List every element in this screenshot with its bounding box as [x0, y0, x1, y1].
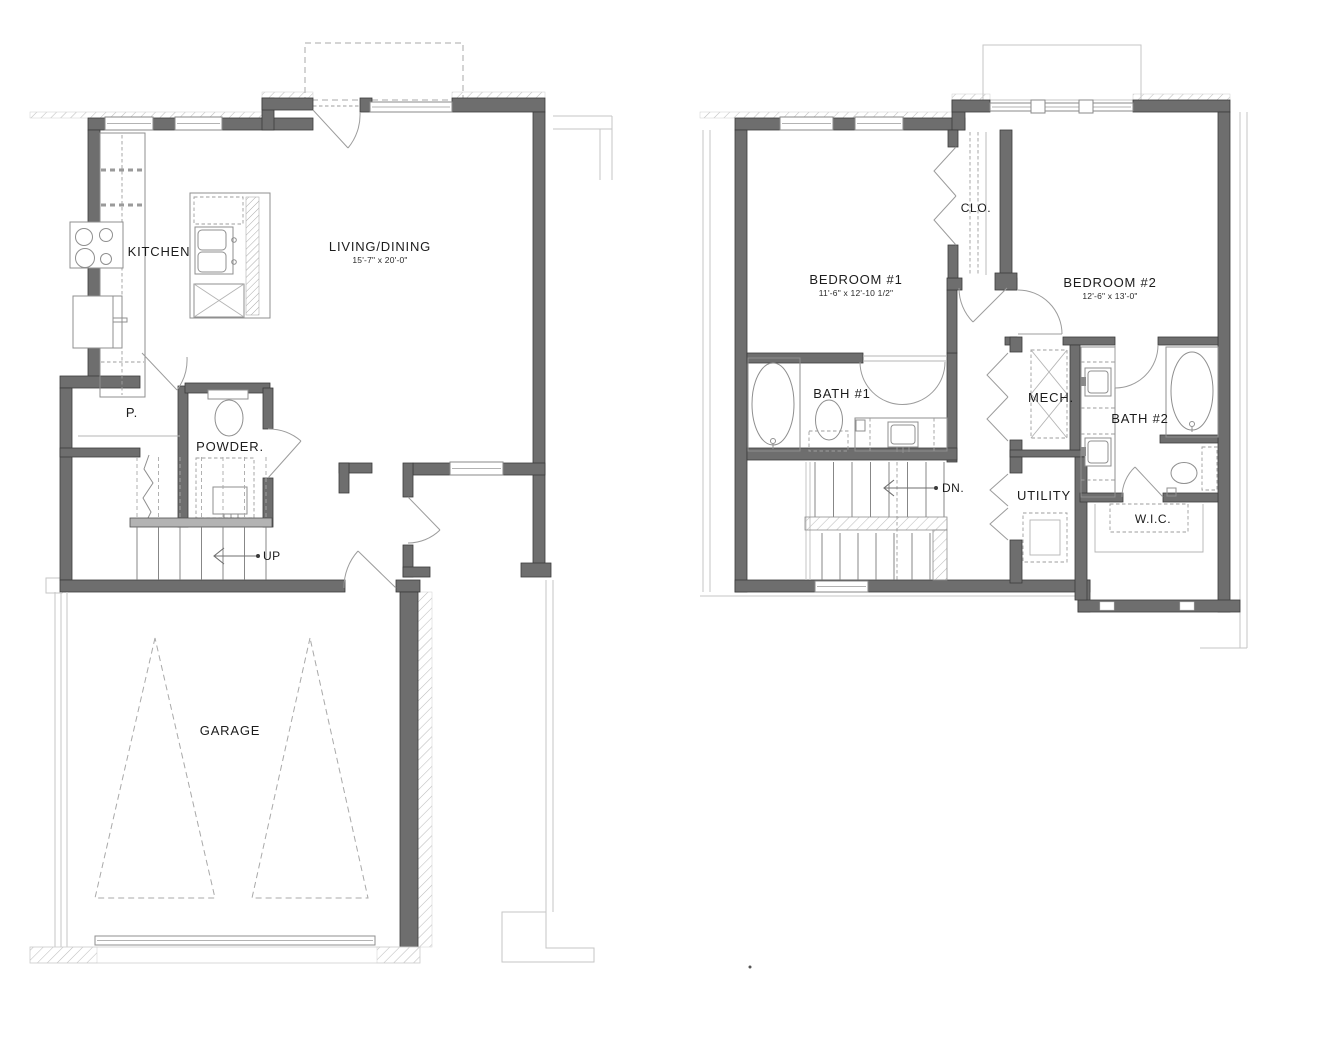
entry-porch-outline [305, 43, 463, 100]
up-label: UP [263, 549, 281, 563]
bedroom2-dims: 12'-6" x 13'-0" [1082, 291, 1137, 301]
garage-left-wall-lines [55, 592, 67, 947]
floor-plan-sheet: KITCHEN LIVING/DINING 15'-7" x 20'-0" P.… [0, 0, 1336, 1056]
living-dining-label: LIVING/DINING [329, 239, 431, 254]
first-floor-windows [105, 102, 503, 475]
bedroom2-label: BEDROOM #2 [1063, 275, 1156, 290]
garage-door [95, 936, 375, 945]
vestibule-door [408, 497, 440, 543]
island-sink [195, 227, 236, 274]
entry-door [313, 110, 360, 148]
utility-bifold-1 [990, 474, 1008, 506]
pantry-door [142, 353, 187, 390]
bath1-label: BATH #1 [813, 386, 870, 401]
vestibule-window [450, 462, 503, 475]
cooktop [70, 222, 123, 268]
wic-door [1122, 467, 1163, 497]
second-floor-plan: CLO. BEDROOM #1 11'-6" x 12'-10 1/2" BED… [700, 45, 1247, 648]
bedroom1-label: BEDROOM #1 [809, 272, 902, 287]
kitchen-fixtures [70, 133, 145, 397]
stair-direction-arrow-up [214, 548, 260, 564]
kitchen-island [190, 193, 270, 318]
bedroom1-door [959, 288, 1007, 322]
bath1-fixtures [748, 358, 947, 453]
bath2-door [1115, 345, 1158, 388]
stray-mark [749, 966, 752, 969]
utility-label: UTILITY [1017, 488, 1071, 503]
bath1-door-swing [860, 362, 945, 405]
living-dining-dims: 15'-7" x 20'-0" [352, 255, 407, 265]
powder-sink [213, 487, 247, 521]
powder-label: POWDER. [196, 439, 264, 454]
first-floor-plan: KITCHEN LIVING/DINING 15'-7" x 20'-0" P.… [30, 43, 612, 963]
powder-toilet [208, 390, 248, 436]
pantry-label: P. [126, 405, 138, 420]
mech-label: MECH. [1028, 390, 1074, 405]
dishwasher [194, 284, 244, 317]
roof-outline [983, 45, 1141, 100]
bedroom1-dims: 11'-6" x 12'-10 1/2" [819, 288, 894, 298]
kitchen-window-2 [175, 117, 222, 130]
powder-door [268, 429, 301, 478]
stair-direction-arrow-down [884, 480, 938, 496]
bath2-tub [1166, 347, 1218, 437]
exterior-sheathing-hatch [30, 92, 545, 947]
adjacent-unit-outline-second-floor [700, 112, 1247, 648]
garage-area [30, 592, 420, 963]
bath2-label: BATH #2 [1111, 411, 1168, 426]
bath1-toilet [809, 400, 848, 451]
dn-label: DN. [942, 481, 964, 495]
mech-bifold-1 [987, 353, 1008, 397]
second-floor-walls [735, 100, 1240, 612]
kitchen-window-1 [105, 117, 153, 130]
stair-break-line [143, 455, 153, 520]
bath1-tub [748, 358, 800, 451]
mech-bifold-2 [987, 397, 1008, 441]
kitchen-label: KITCHEN [128, 244, 191, 259]
garage-label: GARAGE [200, 723, 260, 738]
stairs-first-floor [130, 455, 272, 580]
bedroom1-window-1 [780, 117, 833, 130]
car-space-2 [252, 638, 368, 898]
stairs-second-floor [805, 462, 947, 580]
stair-landing-bar [130, 518, 272, 527]
bedroom1-window-2 [855, 117, 903, 130]
refrigerator [73, 296, 127, 348]
stair-window [815, 581, 868, 592]
bedroom2-door [1018, 290, 1062, 334]
closet-label: CLO. [961, 201, 991, 215]
bath2-toilet [1167, 447, 1217, 496]
living-window [370, 102, 452, 112]
floor-plan-drawing: KITCHEN LIVING/DINING 15'-7" x 20'-0" P.… [0, 0, 1336, 1056]
powder-room-fixtures [196, 390, 254, 521]
stair-landing-hatch [805, 517, 947, 530]
closet-door-leaf-1 [934, 147, 956, 196]
closet-door-leaf-2 [934, 196, 956, 245]
utility-bifold-2 [990, 508, 1008, 540]
wic-label: W.I.C. [1135, 512, 1171, 526]
car-space-1 [95, 638, 215, 898]
garage-entry-door [344, 551, 396, 588]
bedroom2-window-strip [990, 100, 1133, 113]
